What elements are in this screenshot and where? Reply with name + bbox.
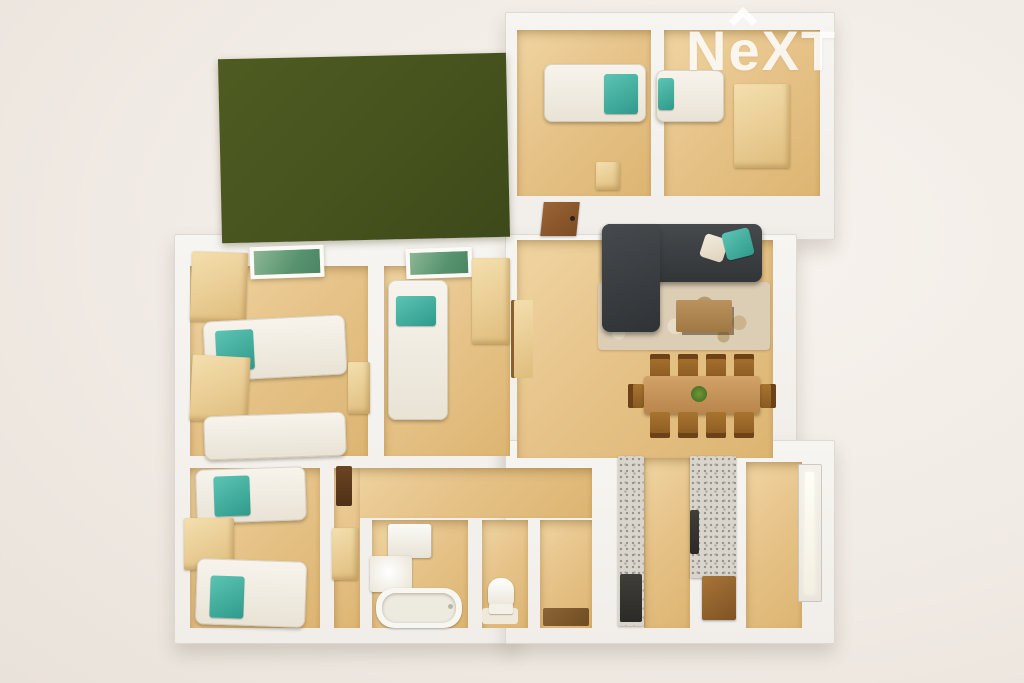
nightstand-a — [348, 362, 370, 414]
wardrobe-b — [472, 258, 510, 344]
bed-c1 — [195, 466, 307, 524]
garden-grass — [218, 53, 510, 243]
pillow-top-left — [604, 74, 638, 114]
kitchen-appliance — [620, 574, 642, 622]
dining-chair — [650, 412, 670, 438]
logo-letter-x: X — [762, 19, 801, 82]
next-logo: NeXT — [686, 18, 837, 83]
bed-a2 — [203, 412, 346, 461]
kitchen-floor — [644, 458, 690, 628]
washing-machine — [370, 556, 412, 592]
entrance-floor — [746, 462, 802, 628]
bathtub-drain — [448, 604, 453, 609]
dining-chair — [706, 412, 726, 438]
dining-chair-end — [628, 384, 644, 408]
wardrobe-top-right — [734, 84, 790, 168]
dining-chair-end — [760, 384, 776, 408]
pillow-b — [396, 296, 436, 326]
wardrobe-a2 — [189, 355, 250, 424]
wardrobe-a1 — [190, 251, 248, 323]
blanket-c2 — [209, 575, 244, 618]
coffee-table — [676, 300, 732, 332]
logo-letter-t: T — [801, 19, 837, 82]
washbasin-cabinet — [388, 524, 432, 558]
blanket-c1 — [213, 475, 250, 516]
logo-letter-n: N — [686, 19, 728, 82]
corridor-floor-h — [334, 468, 592, 518]
toilet-tank — [489, 604, 513, 614]
front-door-glass — [805, 472, 814, 594]
oven-appliance — [690, 510, 699, 554]
corridor-shelf — [336, 466, 352, 506]
skylight-window-2 — [405, 247, 472, 279]
sideboard-living — [511, 300, 533, 378]
plant-centerpiece — [691, 386, 707, 402]
skylight-window-1 — [249, 245, 324, 280]
dining-chair — [678, 412, 698, 438]
pillow-top-right — [658, 78, 674, 110]
door-handle — [570, 216, 575, 221]
dining-chair — [734, 412, 754, 438]
bathtub-basin — [382, 593, 456, 623]
floorplan-render: NeXT — [0, 0, 1024, 683]
sofa-chaise — [602, 224, 660, 332]
doormat — [543, 608, 589, 626]
kitchen-cabinet — [702, 576, 736, 620]
dresser-top-hall — [596, 162, 620, 190]
corridor-desk — [332, 528, 358, 580]
